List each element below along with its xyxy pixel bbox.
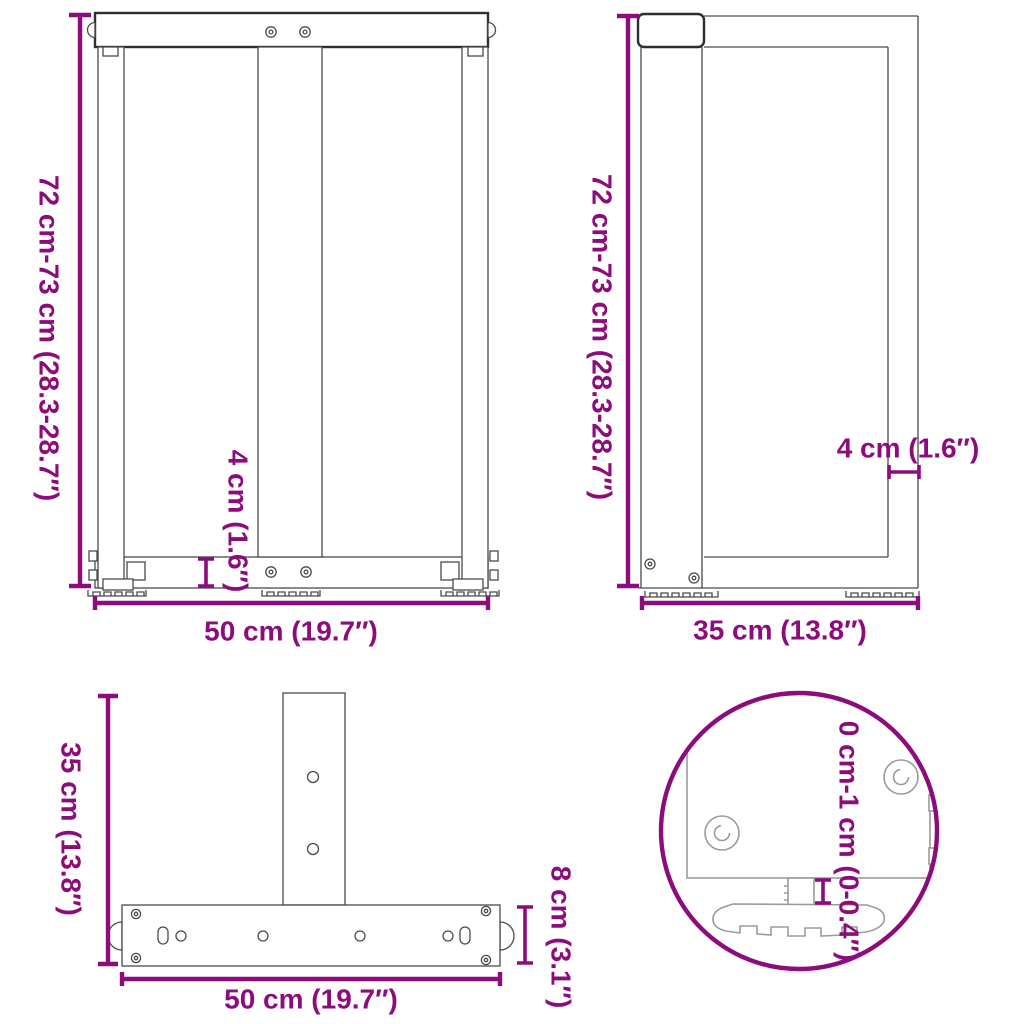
edge-tab	[89, 551, 97, 561]
screw-icon	[884, 760, 918, 794]
side-view: 72 cm-73 cm (28.3-28.7″) 4 cm (1.6″) 35 …	[587, 14, 980, 646]
screw-icon	[266, 27, 276, 37]
side-plate-cross-section	[638, 14, 704, 47]
foot-mount-right	[453, 579, 483, 590]
edge-tab	[490, 551, 498, 561]
detail-view: 0 cm-1 cm (0-0.4″)	[661, 665, 939, 969]
screw-icon	[131, 909, 140, 918]
screw-icon	[301, 567, 311, 577]
edge-tab	[89, 570, 97, 580]
screw-icon	[481, 906, 490, 915]
diagram-page: 72 cm-73 cm (28.3-28.7″) 4 cm (1.6″) 50 …	[0, 0, 1024, 1024]
side-post-edges	[641, 47, 702, 588]
front-width-label: 50 cm (19.7″)	[204, 616, 378, 647]
adjustable-foot-serration	[645, 591, 718, 597]
foot-bracket-left	[127, 562, 145, 580]
screw-icon	[645, 559, 655, 569]
front-left-column	[98, 47, 124, 588]
top-plate-bar	[283, 693, 345, 905]
adjustable-foot-serration	[846, 591, 919, 597]
foot-bracket-right	[441, 562, 459, 580]
column-tab	[468, 47, 483, 56]
side-outer-outline	[639, 16, 918, 588]
edge-tab	[490, 570, 498, 580]
side-height-label: 72 cm-73 cm (28.3-28.7″)	[587, 174, 618, 500]
slot-hole-icon	[460, 927, 470, 944]
slot-hole-icon	[158, 927, 168, 944]
side-depth-label: 35 cm (13.8″)	[693, 615, 867, 646]
column-tab	[103, 47, 118, 56]
plate-end-notch-right	[488, 23, 496, 38]
bar-width-dimension-line	[517, 907, 533, 963]
screw-icon	[131, 953, 140, 962]
screw-icon	[300, 27, 310, 37]
front-bottom-bar	[95, 557, 488, 588]
depth-dimension-line	[642, 596, 918, 610]
side-inner-outline	[704, 47, 888, 557]
front-right-column	[462, 47, 488, 588]
side-wall-thickness-label: 4 cm (1.6″)	[837, 433, 980, 464]
hole-icon	[443, 931, 453, 941]
front-height-label: 72 cm-73 cm (28.3-28.7″)	[34, 175, 65, 501]
hole-icon	[176, 931, 186, 941]
detail-contents	[687, 665, 939, 936]
front-top-plate	[95, 13, 488, 47]
screw-icon	[689, 573, 699, 583]
plate-end-notch-left	[88, 23, 96, 38]
foot-mount-left	[103, 579, 133, 590]
adjustable-foot-serration	[262, 590, 320, 596]
screw-icon	[481, 955, 490, 964]
adjustable-foot-serration	[88, 590, 146, 596]
screw-icon	[266, 567, 276, 577]
front-center-post	[258, 47, 322, 557]
hole-icon	[258, 931, 268, 941]
foot-bump-right	[500, 922, 514, 950]
wall-thickness-dimension-line	[889, 465, 919, 479]
hole-icon	[355, 931, 365, 941]
top-depth-label: 35 cm (13.8″)	[56, 742, 87, 916]
height-dimension-line	[617, 16, 639, 586]
top-width-label: 50 cm (19.7″)	[224, 984, 398, 1015]
width-dimension-line	[95, 596, 488, 610]
top-bar-width-label: 8 cm (3.1″)	[546, 866, 577, 1009]
front-view: 72 cm-73 cm (28.3-28.7″) 4 cm (1.6″) 50 …	[34, 13, 500, 647]
top-view: 35 cm (13.8″) 50 cm (19.7″) 8 cm (3.1″)	[56, 693, 577, 1015]
screw-icon	[705, 816, 739, 850]
adjustable-foot-serration	[441, 590, 499, 596]
foot-thread-stem	[788, 878, 814, 905]
side-bottom-screws	[645, 559, 699, 583]
hole-icon	[308, 772, 319, 783]
adjust-range-dimension-line	[815, 880, 831, 903]
table-leg-dimension-diagram: 72 cm-73 cm (28.3-28.7″) 4 cm (1.6″) 50 …	[0, 0, 1024, 1024]
height-dimension-line	[69, 15, 91, 586]
hole-icon	[308, 844, 319, 855]
front-plate-thickness-label: 4 cm (1.6″)	[223, 450, 254, 593]
detail-adjust-range-label: 0 cm-1 cm (0-0.4″)	[834, 721, 865, 962]
